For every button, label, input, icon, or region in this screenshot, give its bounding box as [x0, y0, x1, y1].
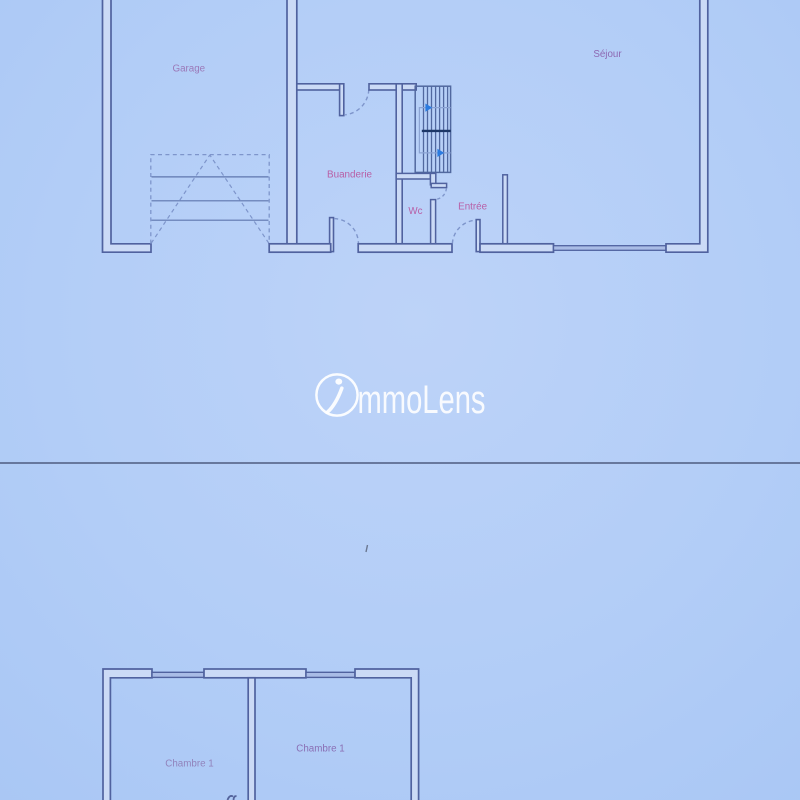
svg-text:Chambre 1: Chambre 1	[165, 759, 213, 770]
svg-text:Entrée: Entrée	[458, 202, 487, 213]
svg-text:Buanderie: Buanderie	[327, 169, 373, 180]
svg-text:Wc: Wc	[408, 206, 422, 217]
svg-text:Séjour: Séjour	[593, 49, 622, 60]
svg-text:Garage: Garage	[172, 64, 205, 75]
svg-text:mmoLens: mmoLens	[358, 378, 486, 422]
svg-text:Chambre 1: Chambre 1	[296, 744, 344, 755]
